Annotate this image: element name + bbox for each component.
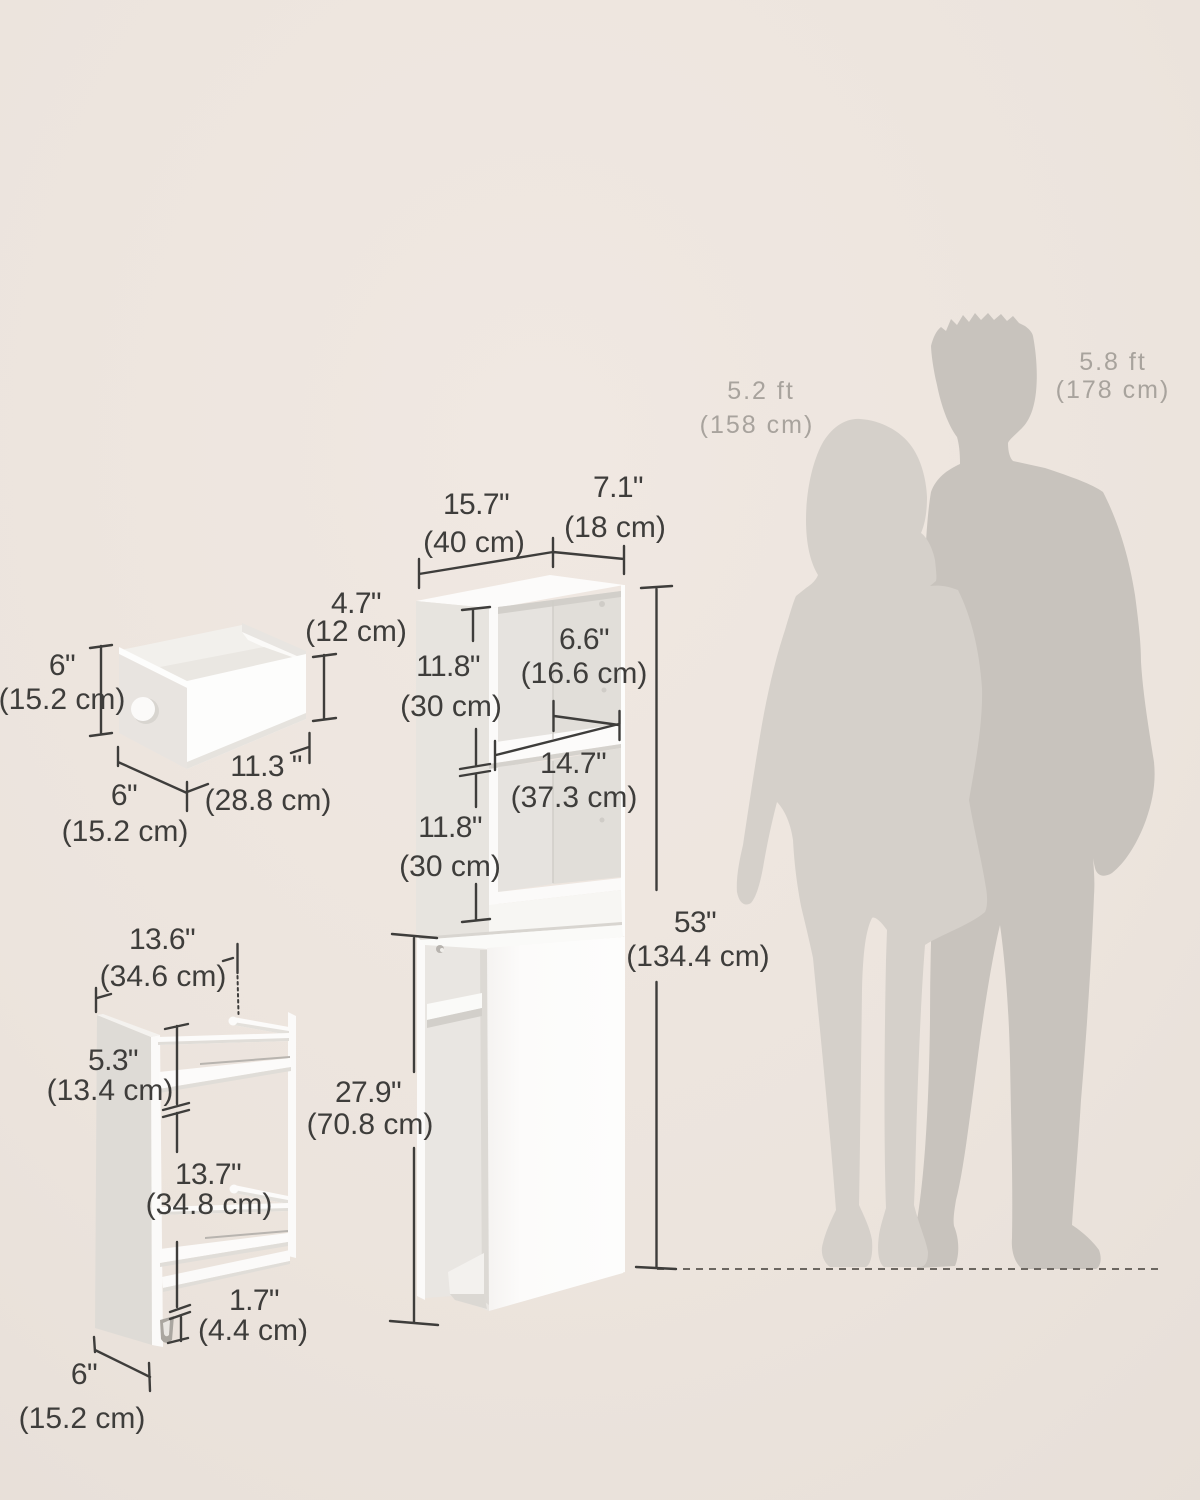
svg-text:(134.4 cm): (134.4 cm) [626,940,769,973]
svg-text:(28.8 cm): (28.8 cm) [205,784,332,817]
svg-text:14.7": 14.7" [540,747,606,780]
svg-text:(178 cm): (178 cm) [1056,376,1171,404]
svg-text:(15.2 cm): (15.2 cm) [62,815,189,848]
svg-text:(18 cm): (18 cm) [564,511,666,544]
svg-text:11.8": 11.8" [418,811,482,844]
svg-text:(30 cm): (30 cm) [399,850,501,883]
svg-text:(158 cm): (158 cm) [700,411,815,439]
svg-text:(70.8 cm): (70.8 cm) [307,1108,434,1141]
svg-text:(4.4 cm): (4.4 cm) [198,1314,308,1347]
svg-text:1.7": 1.7" [229,1284,279,1317]
svg-text:6": 6" [71,1358,97,1391]
svg-text:(16.6 cm): (16.6 cm) [521,657,648,690]
svg-text:(30 cm): (30 cm) [400,690,502,723]
svg-text:6.6": 6.6" [559,623,609,656]
svg-text:15.7": 15.7" [443,488,509,521]
svg-text:27.9": 27.9" [335,1076,401,1109]
svg-text:7.1": 7.1" [593,471,643,504]
svg-text:(34.8 cm): (34.8 cm) [146,1188,273,1221]
svg-text:5.3": 5.3" [88,1044,138,1077]
svg-text:5.8 ft: 5.8 ft [1079,348,1147,376]
svg-text:5.2 ft: 5.2 ft [727,377,795,405]
svg-text:11.8": 11.8" [416,650,480,683]
svg-text:6": 6" [111,779,137,812]
svg-text:6": 6" [49,649,75,682]
svg-text:(37.3 cm): (37.3 cm) [511,781,638,814]
svg-text:13.7": 13.7" [175,1158,241,1191]
svg-text:(13.4 cm): (13.4 cm) [47,1074,174,1107]
svg-text:(15.2 cm): (15.2 cm) [0,683,125,716]
svg-text:(40 cm): (40 cm) [423,526,525,559]
svg-text:(12 cm): (12 cm) [305,615,407,648]
svg-text:(15.2 cm): (15.2 cm) [19,1402,146,1435]
svg-text:13.6": 13.6" [129,923,195,956]
svg-text:53": 53" [674,906,716,939]
svg-text:(34.6 cm): (34.6 cm) [100,960,227,993]
svg-text:11.3 ": 11.3 " [230,750,302,783]
